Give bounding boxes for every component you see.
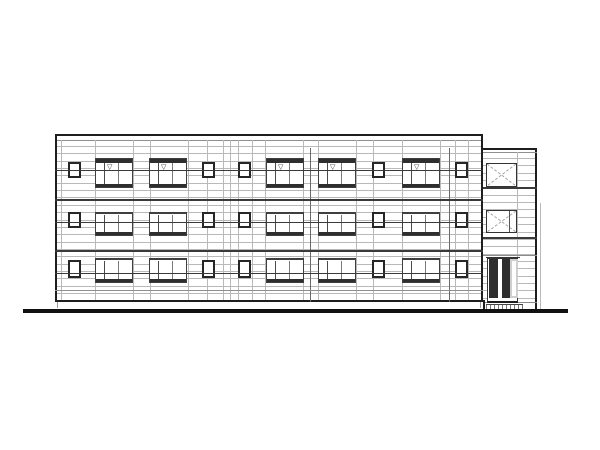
annex-siding-line — [483, 195, 535, 196]
window-sill-bar — [319, 279, 355, 282]
level-line — [55, 170, 483, 171]
window-large — [149, 258, 187, 283]
window-small — [455, 212, 468, 228]
window-mullion — [341, 163, 342, 184]
facade-joint-line — [468, 140, 469, 300]
window-large — [149, 212, 187, 236]
window-large — [402, 212, 440, 236]
facade-siding-line — [57, 146, 481, 147]
window-side-panel — [403, 163, 412, 184]
facade-joint-line — [223, 140, 224, 300]
window-sill-bar — [150, 232, 186, 235]
level-line — [55, 273, 483, 274]
window-side-panel — [96, 215, 105, 232]
window-mullion — [172, 215, 173, 232]
window-side-panel — [403, 215, 412, 232]
facade-annex-edge-line — [483, 300, 485, 309]
window-mullion — [425, 215, 426, 232]
window-large: ▽ — [149, 158, 187, 188]
window-small — [372, 260, 385, 278]
facade-joint-line — [440, 140, 441, 300]
window-mullion — [118, 215, 119, 232]
window-large — [318, 258, 356, 283]
window-mullion — [289, 163, 290, 184]
window-mullion — [118, 261, 119, 279]
annex-outer-edge-line — [540, 203, 541, 309]
window-mullion — [425, 163, 426, 184]
annex-siding-line — [483, 246, 535, 247]
level-line — [55, 222, 483, 223]
entrance-door-panel — [502, 259, 510, 298]
window-sill-bar — [403, 184, 439, 187]
window-large — [266, 212, 304, 236]
plinth-tick-line — [57, 302, 58, 308]
annex-siding-line — [483, 158, 535, 159]
window-large — [95, 258, 133, 283]
window-side-panel — [403, 261, 412, 279]
facade-joint-line-strong — [310, 148, 311, 302]
facade-joint-line — [133, 140, 134, 300]
window-mullion — [118, 163, 119, 184]
facade-siding-line — [57, 190, 481, 191]
x-brace-panel — [486, 210, 517, 233]
x-brace-diagonals — [487, 164, 516, 186]
window-sill-bar — [403, 279, 439, 282]
facade-parapet-line — [57, 140, 481, 141]
window-side-panel — [267, 163, 276, 184]
window-side-panel — [319, 261, 328, 279]
facade-joint-line — [230, 140, 231, 300]
facade-joint-line — [188, 140, 189, 300]
window-mullion — [341, 261, 342, 279]
entrance-door — [487, 258, 518, 303]
facade-siding-line — [57, 153, 481, 154]
window-side-panel — [150, 261, 159, 279]
window-sill-bar — [150, 279, 186, 282]
annex-siding-line — [483, 239, 535, 240]
floor-band-line — [55, 250, 483, 252]
window-mullion — [172, 163, 173, 184]
window-side-panel — [96, 261, 105, 279]
window-sill-bar — [96, 184, 132, 187]
window-side-panel — [96, 163, 105, 184]
facade-siding-line — [57, 286, 481, 287]
annex-parapet-line — [483, 152, 537, 153]
facade-joint-line — [61, 140, 62, 300]
window-mullion — [289, 261, 290, 279]
facade-siding-line — [57, 242, 481, 243]
window-sill-bar — [96, 279, 132, 282]
window-sill-bar — [267, 232, 303, 235]
window-large — [266, 258, 304, 283]
facade-joint-line — [252, 140, 253, 300]
annex-band-line — [483, 237, 537, 239]
window-large: ▽ — [402, 158, 440, 188]
window-small — [455, 260, 468, 278]
window-side-panel — [150, 215, 159, 232]
window-mullion — [425, 261, 426, 279]
window-large — [95, 212, 133, 236]
window-sill-bar — [319, 184, 355, 187]
entrance-door-panel — [510, 259, 518, 298]
window-large: ▽ — [266, 158, 304, 188]
x-brace-diagonals — [487, 211, 516, 232]
window-sill-bar — [267, 279, 303, 282]
window-sill-bar — [150, 184, 186, 187]
x-brace-panel — [486, 163, 517, 187]
window-small — [68, 260, 81, 278]
window-large: ▽ — [318, 158, 356, 188]
window-large: ▽ — [95, 158, 133, 188]
window-side-panel — [267, 261, 276, 279]
x-brace-panel-divider — [509, 211, 510, 232]
floor-band-line — [55, 199, 483, 201]
window-mullion — [172, 261, 173, 279]
window-large — [402, 258, 440, 283]
window-side-panel — [319, 215, 328, 232]
facade-siding-line — [57, 205, 481, 206]
annex-siding-line — [483, 202, 535, 203]
window-small — [372, 212, 385, 228]
window-sill-bar — [96, 232, 132, 235]
facade-siding-line — [57, 293, 481, 294]
window-small — [238, 260, 251, 278]
window-sill-bar — [319, 232, 355, 235]
entrance-door-panel-inset — [512, 261, 516, 296]
window-small — [202, 212, 215, 228]
facade-base-line — [55, 290, 483, 291]
window-sill-bar — [267, 184, 303, 187]
facade-joint-line-strong — [449, 148, 450, 302]
window-mullion — [341, 215, 342, 232]
window-side-panel — [319, 163, 328, 184]
annex-band-line — [483, 187, 537, 189]
facade-joint-line — [356, 140, 357, 300]
window-small — [238, 212, 251, 228]
plinth-tick-line — [480, 302, 481, 308]
window-large — [318, 212, 356, 236]
entrance-door-panel — [489, 259, 498, 298]
window-mullion — [289, 215, 290, 232]
window-small — [202, 260, 215, 278]
window-side-panel — [267, 215, 276, 232]
ground-line — [23, 309, 568, 313]
window-side-panel — [150, 163, 159, 184]
window-small — [68, 212, 81, 228]
window-sill-bar — [403, 232, 439, 235]
elevation-drawing: ▽▽▽▽▽ — [0, 0, 600, 450]
